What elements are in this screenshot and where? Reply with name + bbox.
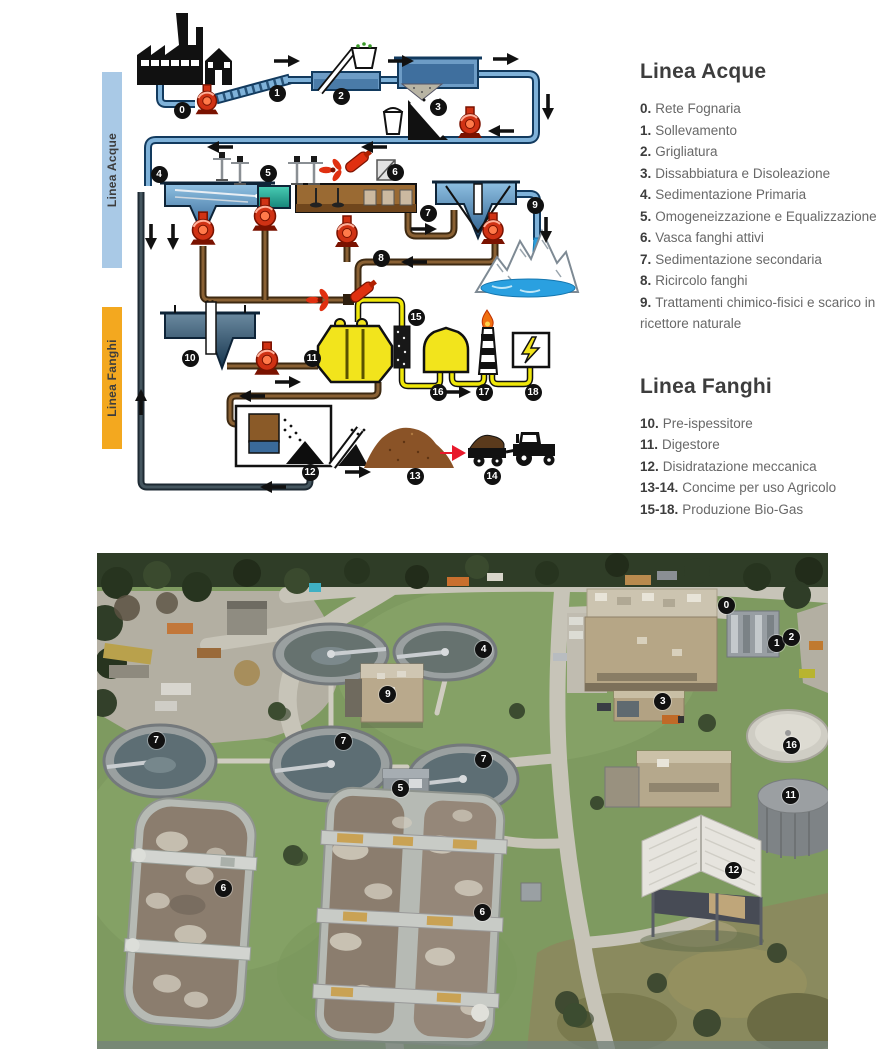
mixer-icons	[213, 148, 395, 313]
legend-item: 11.Digestore	[640, 434, 878, 456]
tank-16	[747, 710, 828, 762]
legend-item: 2.Grigliatura	[640, 141, 878, 163]
legend-item: 10.Pre-ispessitore	[640, 413, 878, 435]
flare-icon	[479, 310, 497, 374]
gas-holder-icon	[424, 328, 468, 372]
legend-item: 9.Trattamenti chimico-fisici e scarico i…	[640, 292, 878, 335]
building-3	[614, 691, 684, 724]
legend-item: 12.Disidratazione meccanica	[640, 456, 878, 478]
legend-acque-title: Linea Acque	[640, 60, 878, 84]
gas-filter-icon	[394, 326, 410, 368]
process-flow-diagram	[95, 0, 645, 510]
basket-icon	[352, 48, 376, 68]
aeration-tank	[296, 184, 416, 212]
aerial-photo: 0 1 2 3 4 9 7 7 7 5 16 11	[97, 553, 828, 1049]
tractor-icon	[468, 432, 555, 467]
page: Linea Acque Linea Fanghi	[0, 0, 884, 1049]
legend-fanghi-title: Linea Fanghi	[640, 375, 878, 399]
legend-item: 0.Rete Fognaria	[640, 98, 878, 120]
power-box-icon	[513, 333, 549, 367]
screen-icon	[312, 42, 380, 92]
sludge-pile-icon	[364, 428, 454, 468]
legend-item: 7.Sedimentazione secondaria	[640, 249, 878, 271]
legend-item: 3.Dissabbiatura e Disoleazione	[640, 163, 878, 185]
dewatering-icon	[236, 406, 331, 466]
house-icon	[205, 48, 232, 85]
legend-item: 6.Vasca fanghi attivi	[640, 227, 878, 249]
secondary-sedimentation-tank	[432, 182, 520, 238]
legend-item: 4.Sedimentazione Primaria	[640, 184, 878, 206]
legend: Linea Acque 0.Rete Fognaria 1.Sollevamen…	[640, 60, 878, 520]
tank-11	[758, 779, 828, 859]
conveyor-icon	[332, 429, 368, 466]
legend-fanghi-list: 10.Pre-ispessitore 11.Digestore 12.Disid…	[640, 413, 878, 521]
legend-item: 1.Sollevamento	[640, 120, 878, 142]
factory-icon	[137, 13, 203, 85]
legend-item: 13-14.Concime per uso Agricolo	[640, 477, 878, 499]
pre-thickener-icon	[160, 302, 260, 368]
bucket-icon	[384, 112, 402, 134]
legend-item: 8.Ricircolo fanghi	[640, 270, 878, 292]
submersible-mixer-icon	[344, 148, 374, 174]
aeration-basin-right	[311, 786, 510, 1047]
aeration-basin-left	[119, 796, 260, 1030]
legend-item: 5.Omogeneizzazione e Equalizzazione	[640, 206, 878, 228]
digester-icon	[318, 319, 392, 382]
legend-acque-list: 0.Rete Fognaria 1.Sollevamento 2.Griglia…	[640, 98, 878, 335]
legend-item: 15-18.Produzione Bio-Gas	[640, 499, 878, 521]
aerial-photo-art	[97, 553, 828, 1049]
small-hut	[521, 883, 541, 901]
propeller-mixer-icon	[319, 157, 343, 182]
